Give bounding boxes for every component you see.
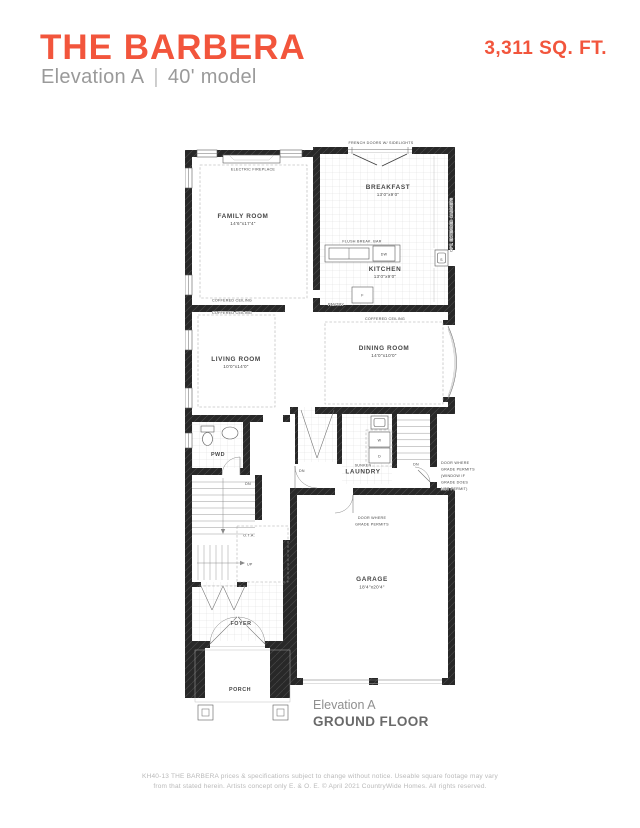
door-note-right: DOOR WHERE GRADE PERMITS (WINDOW IF GRAD… (441, 461, 475, 491)
fireplace (223, 155, 280, 163)
floor-plan: FRENCH DOORS W/ SIDELIGHTS ELECTRIC FIRE… (185, 130, 515, 742)
dining-room-dims: 14'0"x10'0" (371, 353, 397, 358)
dn-garage-label: DN (413, 463, 419, 467)
dryer-label: D (378, 455, 381, 459)
plan-caption: Elevation A GROUND FLOOR (313, 698, 429, 729)
door-note-right-2: GRADE PERMITS (441, 468, 475, 472)
opt-extended-cabinets-label: OPT. EXTENDED CABINETS (450, 197, 454, 252)
french-doors-note: FRENCH DOORS W/ SIDELIGHTS (349, 141, 414, 145)
page-title: THE BARBERA (40, 28, 306, 68)
page: THE BARBERA 3,311 SQ. FT. Elevation A|40… (0, 0, 640, 828)
flush-break-bar-label: FLUSH BREAK. BAR (342, 240, 381, 244)
door-note-bottom: DOOR WHERE GRADE PERMITS (355, 516, 389, 527)
garage-dims: 18'4"x20'4" (359, 585, 385, 590)
living-room-dims: 10'0"x14'0" (223, 364, 249, 369)
ota-label: O.T.A. (243, 534, 255, 538)
breakfast-label: BREAKFAST (366, 184, 410, 191)
dishwasher-label: DW (381, 253, 388, 257)
bay-window (448, 326, 457, 399)
subtitle-model: 40' model (168, 66, 257, 88)
caption-elevation: Elevation A (313, 698, 429, 712)
garage-entry-door (335, 495, 353, 513)
washer-label: W (378, 439, 382, 443)
caption-floor: GROUND FLOOR (313, 714, 429, 729)
legal-footer: KH40-13 THE BARBERA prices & specificati… (0, 772, 640, 792)
sink-label: S (440, 258, 443, 262)
door-note-bottom-1: DOOR WHERE (358, 516, 387, 520)
garage-steps (397, 420, 430, 482)
subtitle-elevation: Elevation A (41, 66, 144, 88)
family-room-dims: 14'6"x17'4" (230, 221, 256, 226)
porch-label: PORCH (229, 687, 251, 693)
subtitle: Elevation A|40' model (41, 66, 257, 89)
foyer-label: FOYER (230, 621, 251, 627)
door-note-right-3: (WINDOW IF (441, 474, 466, 478)
pantry-label: PANTRY (328, 303, 344, 307)
kitchen-dims: 13'0"x9'0" (374, 274, 397, 279)
dn-main-label: DN (245, 482, 251, 486)
breakfast-dims: 13'0"x9'0" (377, 192, 400, 197)
pwd-label: PWD (211, 452, 225, 458)
legal-line-2: from that stated herein. Artists concept… (0, 782, 640, 792)
dn-hall-label: DN (299, 469, 305, 473)
living-room-label: LIVING ROOM (211, 356, 261, 363)
subtitle-divider: | (144, 66, 168, 88)
kitchen-label: KITCHEN (369, 266, 402, 273)
garage-label: GARAGE (356, 576, 388, 583)
electric-fireplace-label: ELECTRIC FIREPLACE (231, 168, 276, 172)
door-note-right-4: GRADE DOES (441, 481, 468, 485)
dining-room-label: DINING ROOM (359, 345, 410, 352)
sqft-label: 3,311 SQ. FT. (484, 38, 607, 60)
door-note-right-5: NOT PERMIT) (441, 487, 468, 491)
main-stairs (192, 478, 288, 582)
legal-line-1: KH40-13 THE BARBERA prices & specificati… (0, 772, 640, 782)
door-note-right-1: DOOR WHERE (441, 461, 470, 465)
door-note-bottom-2: GRADE PERMITS (355, 523, 389, 527)
laundry-label: LAUNDRY (345, 469, 380, 476)
coffered-family-label: COFFERED CEILING (212, 299, 252, 303)
family-room-label: FAMILY ROOM (218, 213, 269, 220)
coffered-dining-label: COFFERED CEILING (365, 317, 405, 321)
sunken-label: SUNKEN (355, 464, 372, 468)
up-label: UP (247, 563, 253, 567)
coffered-living-label: COFFERED CEILING (212, 311, 252, 315)
